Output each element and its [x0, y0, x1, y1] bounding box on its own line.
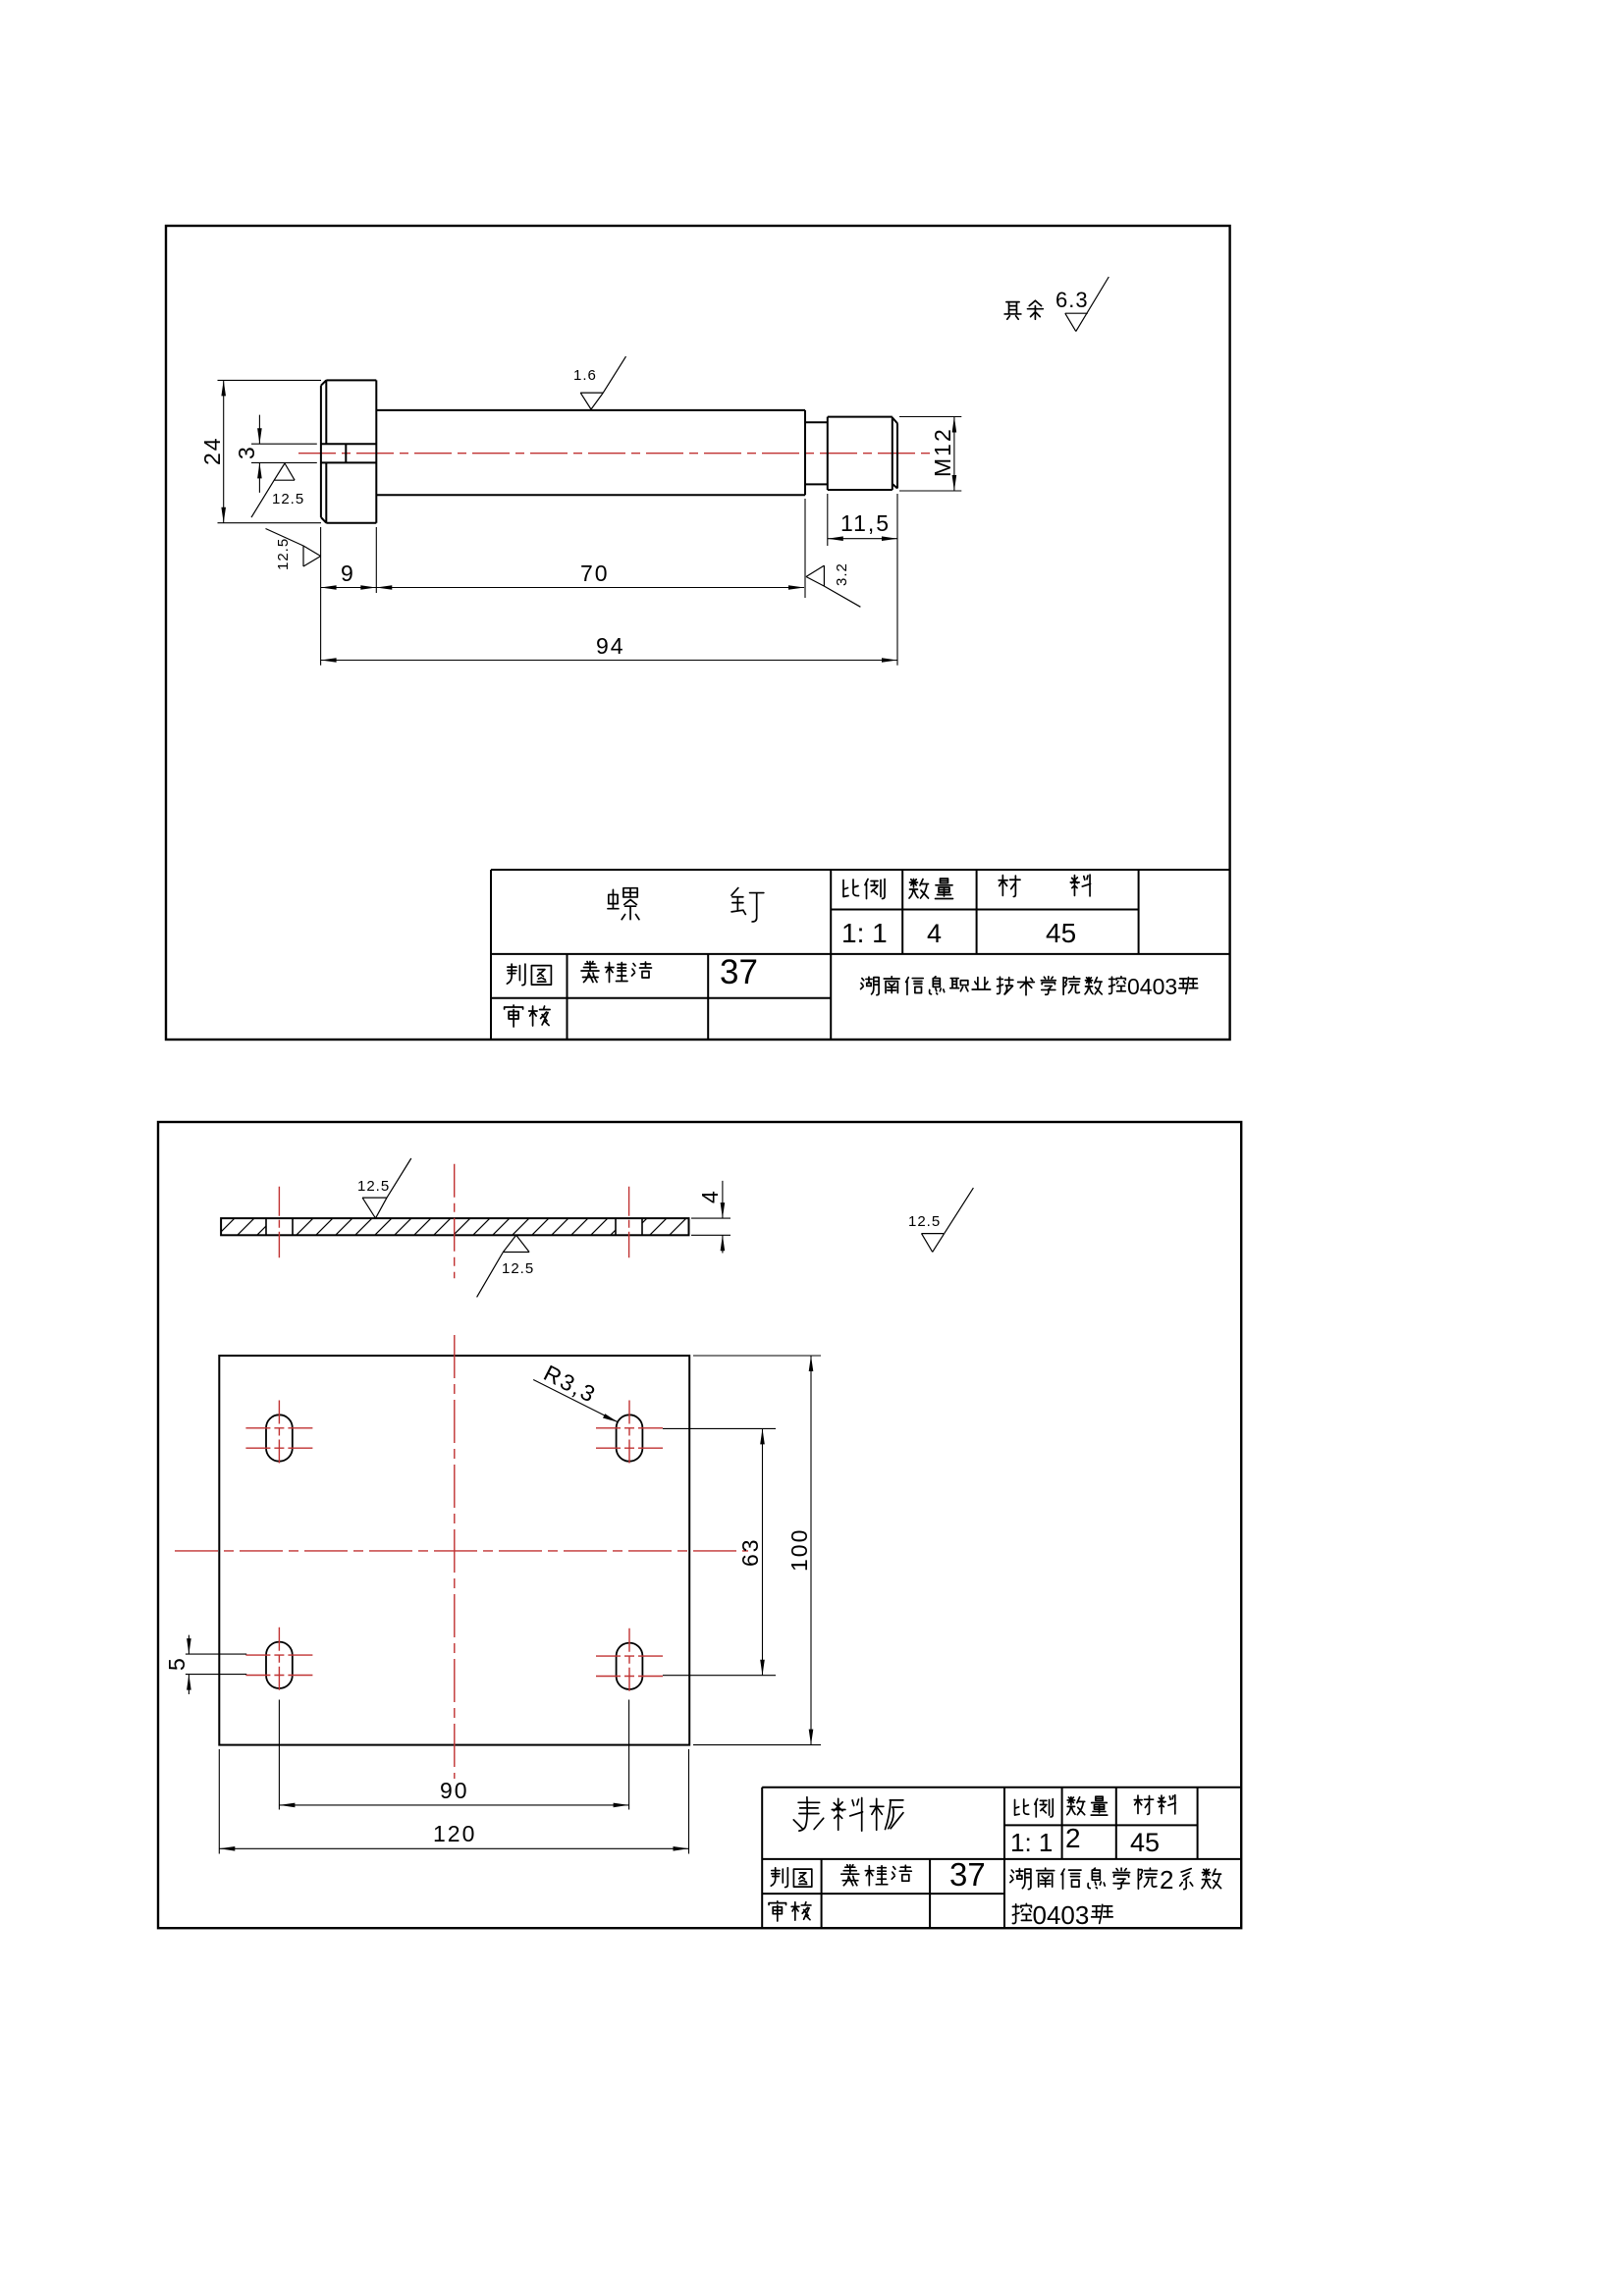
svg-text:6.3: 6.3 — [1055, 288, 1089, 312]
svg-text:4: 4 — [697, 1189, 723, 1203]
svg-text:0403: 0403 — [1127, 974, 1177, 999]
svg-text:37: 37 — [949, 1856, 986, 1893]
svg-text:37: 37 — [720, 953, 758, 991]
svg-text:3: 3 — [234, 445, 259, 459]
svg-text:63: 63 — [737, 1537, 763, 1567]
svg-text:12.5: 12.5 — [502, 1260, 534, 1277]
svg-text:1: 1: 1: 1 — [1010, 1828, 1053, 1857]
svg-text:0403: 0403 — [1033, 1900, 1090, 1930]
svg-text:M12: M12 — [930, 427, 955, 477]
svg-text:11,5: 11,5 — [840, 510, 891, 536]
svg-text:45: 45 — [1130, 1828, 1160, 1857]
svg-text:2: 2 — [1160, 1865, 1173, 1895]
svg-text:45: 45 — [1046, 918, 1076, 948]
svg-text:12.5: 12.5 — [272, 491, 304, 507]
svg-text:94: 94 — [596, 633, 625, 659]
svg-text:100: 100 — [786, 1528, 812, 1572]
svg-text:1: 1: 1: 1 — [841, 918, 888, 948]
svg-text:9: 9 — [341, 561, 355, 586]
svg-text:4: 4 — [927, 919, 942, 948]
svg-text:1.6: 1.6 — [573, 367, 597, 384]
svg-text:3.2: 3.2 — [834, 562, 850, 586]
svg-text:120: 120 — [433, 1821, 476, 1846]
svg-text:70: 70 — [580, 561, 610, 586]
svg-text:24: 24 — [199, 436, 225, 465]
svg-text:5: 5 — [164, 1656, 189, 1671]
svg-text:12.5: 12.5 — [357, 1178, 390, 1195]
svg-text:12.5: 12.5 — [908, 1213, 941, 1230]
svg-text:90: 90 — [440, 1778, 469, 1803]
svg-text:12.5: 12.5 — [275, 538, 292, 570]
svg-text:2: 2 — [1065, 1823, 1081, 1853]
